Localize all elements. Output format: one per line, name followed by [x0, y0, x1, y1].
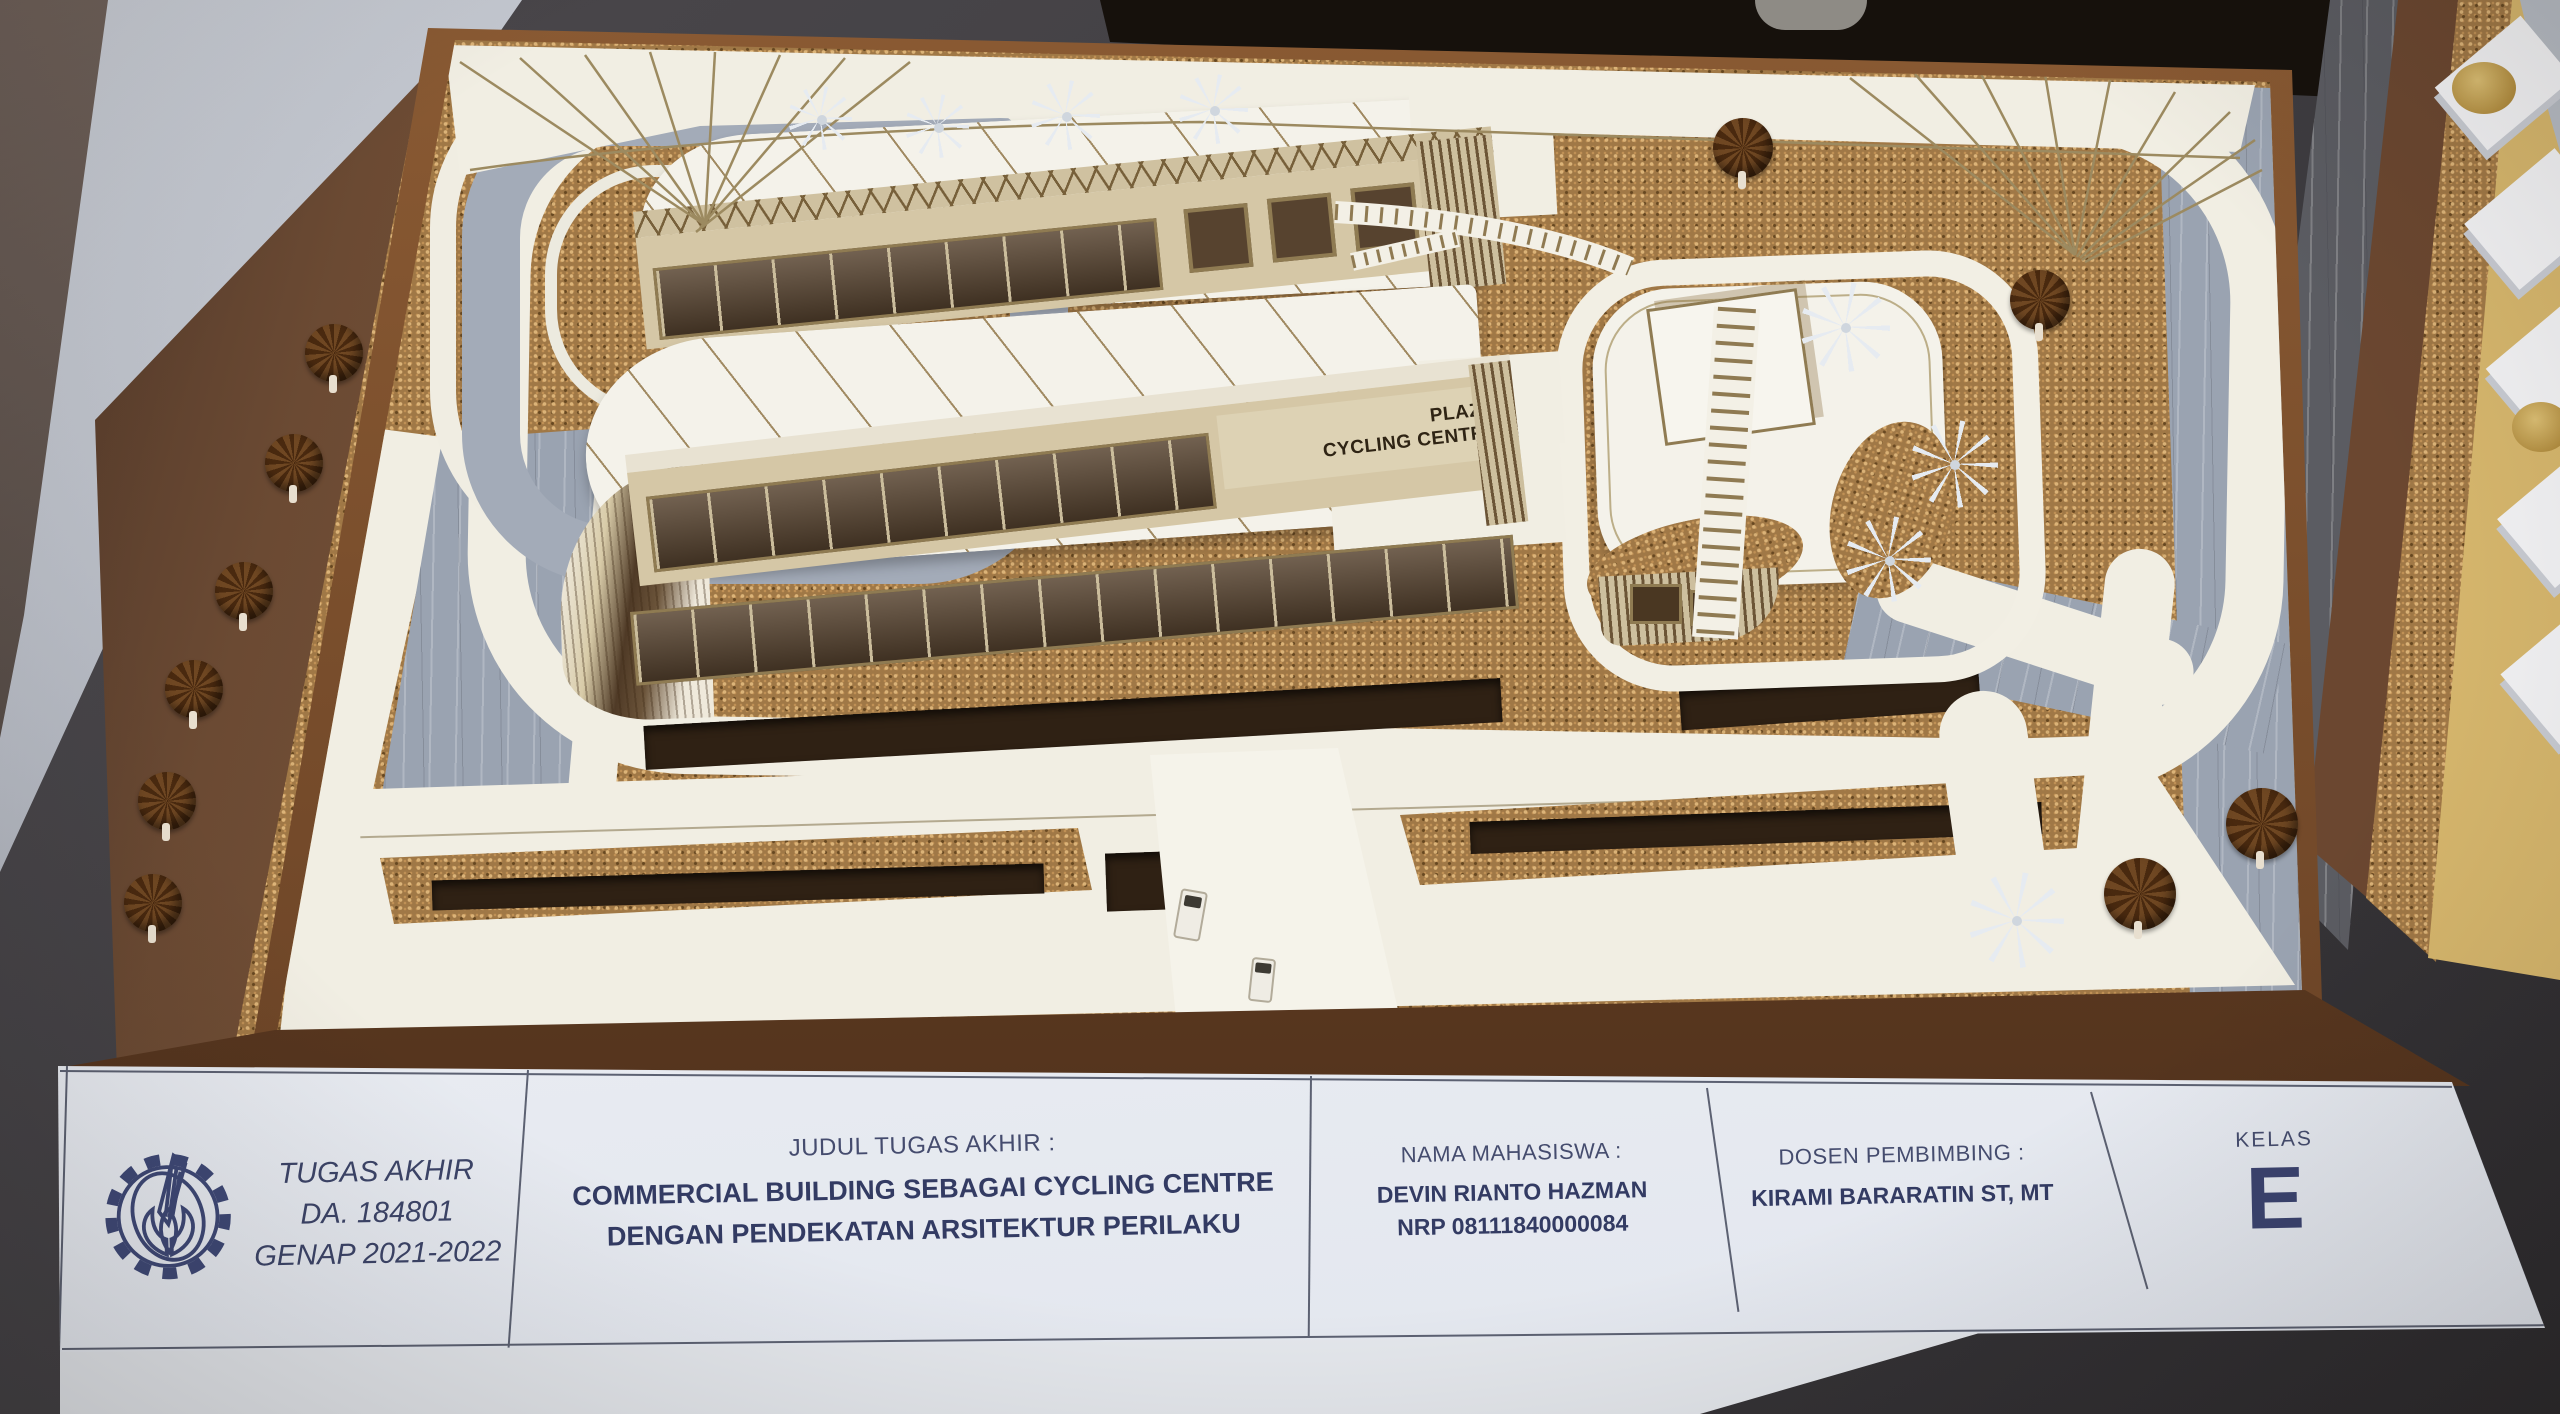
project-code: DA. 184801	[238, 1190, 517, 1237]
mahasiswa-name: DEVIN RIANTO HAZMAN	[1334, 1175, 1690, 1209]
tree-icon	[138, 772, 196, 830]
palm-tree-icon	[1178, 74, 1248, 144]
building-a-louver-end	[1416, 134, 1507, 291]
tree-icon	[165, 660, 223, 718]
mahasiswa-nrp: NRP 08111840000084	[1335, 1208, 1691, 1242]
card-cell-dosen: DOSEN PEMBIMBING : KIRAMI BARARATIN ST, …	[1725, 1138, 2078, 1212]
mahasiswa-header: NAMA MAHASISWA :	[1333, 1136, 1689, 1169]
its-logo-icon	[89, 1135, 246, 1292]
building-c-skylight	[1646, 288, 1816, 446]
tree-icon	[124, 874, 182, 932]
tree-icon	[2010, 270, 2070, 330]
card-separator-4	[2090, 1092, 2148, 1290]
judul-line1: COMMERCIAL BUILDING SEBAGAI CYCLING CENT…	[562, 1166, 1284, 1212]
project-title: TUGAS AKHIR	[237, 1149, 516, 1196]
palm-tree-icon	[1968, 872, 2064, 968]
judul-header: JUDUL TUGAS AKHIR :	[561, 1124, 1283, 1167]
building-a-square-window	[1267, 193, 1337, 263]
building-a-square-window	[1183, 203, 1253, 273]
card-cell-project: TUGAS AKHIR DA. 184801 GENAP 2021-2022	[237, 1149, 518, 1278]
card-cell-mahasiswa: NAMA MAHASISWA : DEVIN RIANTO HAZMAN NRP…	[1333, 1136, 1691, 1242]
palm-tree-icon	[1845, 516, 1931, 602]
kelas-value: E	[2149, 1151, 2401, 1244]
tree-icon	[265, 434, 323, 492]
dosen-name: KIRAMI BARARATIN ST, MT	[1726, 1178, 2078, 1212]
car-miniature	[1248, 957, 1276, 1003]
neighbor-bush	[2452, 62, 2516, 114]
plaza-sign-line2: CYCLING CENTRE	[1322, 421, 1499, 464]
palm-tree-icon	[788, 86, 852, 150]
building-a-square-window	[1350, 182, 1420, 252]
dosen-header: DOSEN PEMBIMBING :	[1725, 1138, 2077, 1171]
tree-icon	[215, 562, 273, 620]
tree-icon	[1713, 118, 1773, 178]
building-c-door	[1690, 590, 1736, 626]
card-separator-2	[1308, 1076, 1312, 1338]
card-cell-kelas: KELAS E	[2149, 1125, 2401, 1244]
stone-on-floor	[1755, 0, 1867, 30]
tree-icon	[305, 324, 363, 382]
project-semester: GENAP 2021-2022	[238, 1231, 517, 1278]
card-cell-judul: JUDUL TUGAS AKHIR : COMMERCIAL BUILDING …	[561, 1124, 1285, 1253]
palm-tree-icon	[1800, 282, 1890, 372]
palm-tree-icon	[1910, 420, 1998, 508]
building-c-door	[1630, 584, 1682, 624]
judul-line2: DENGAN PENDEKATAN ARSITEKTUR PERILAKU	[563, 1207, 1285, 1253]
architectural-model-photo: PLAZA CYCLING CENTRE	[0, 0, 2560, 1414]
tree-icon	[2226, 788, 2298, 860]
palm-tree-icon	[1030, 80, 1100, 150]
palm-tree-icon	[905, 94, 969, 158]
tree-icon	[2104, 858, 2176, 930]
